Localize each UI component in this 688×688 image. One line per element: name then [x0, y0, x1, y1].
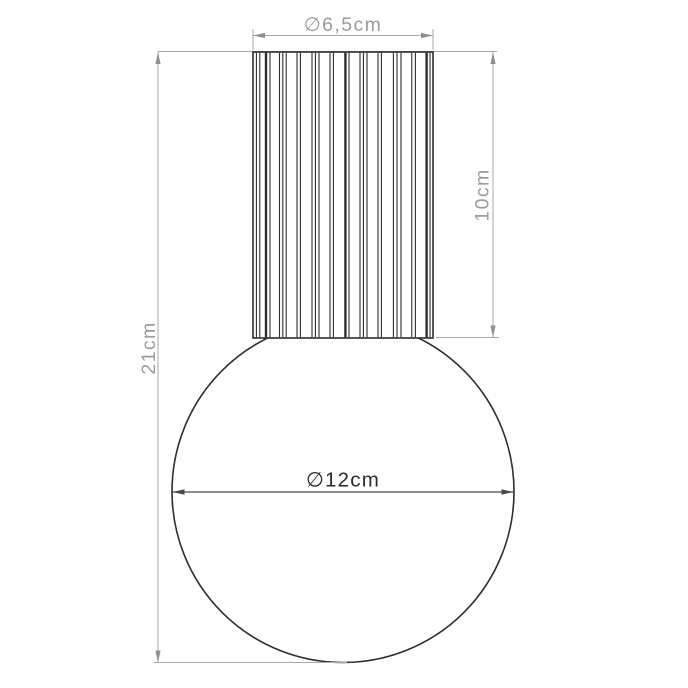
arrow-up-icon [490, 52, 495, 64]
arrow-down-icon [155, 651, 160, 663]
dimension-neck-height: 10cm [472, 52, 496, 338]
dimension-top-diameter: ∅6,5cm [253, 14, 433, 50]
arrow-left-icon [253, 33, 265, 38]
total-height-label: 21cm [138, 321, 160, 374]
dimension-total-height: 21cm [138, 52, 161, 663]
arrow-right-icon [421, 33, 433, 38]
technical-drawing-canvas: ∅6,5cm 10cm 21cm ∅12cm [0, 0, 688, 688]
arrow-right-icon [502, 489, 514, 495]
arrow-down-icon [490, 326, 495, 338]
lamp-dimension-diagram: ∅6,5cm 10cm 21cm ∅12cm [0, 0, 688, 688]
arrow-up-icon [155, 52, 160, 64]
arrow-left-icon [173, 489, 185, 495]
neck-height-label: 10cm [472, 168, 494, 221]
top-diameter-label: ∅6,5cm [304, 14, 383, 36]
dimension-sphere-diameter: ∅12cm [173, 469, 514, 495]
sphere-diameter-label: ∅12cm [306, 469, 380, 492]
